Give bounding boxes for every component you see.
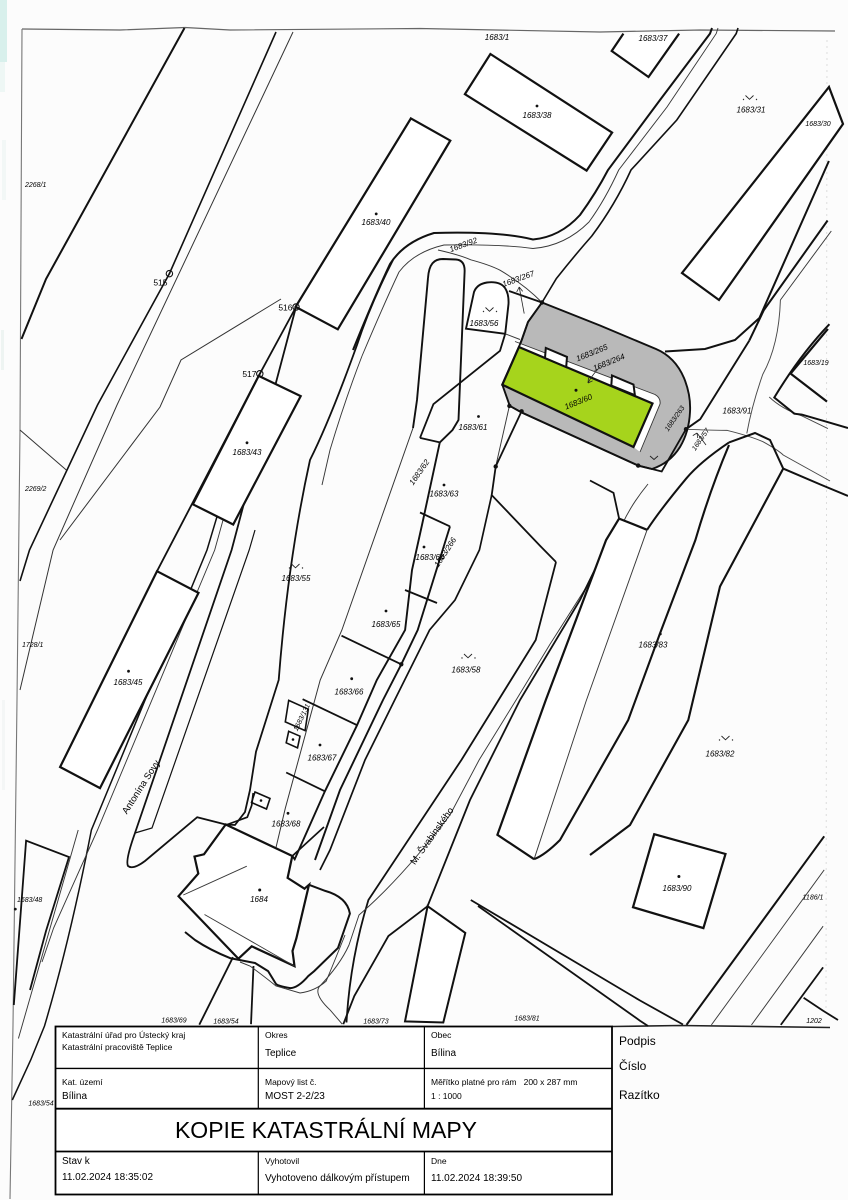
svg-text:1683/82: 1683/82 (706, 750, 735, 759)
svg-text:2269/2: 2269/2 (24, 486, 47, 493)
svg-text:1683/61: 1683/61 (459, 423, 488, 432)
svg-text:1683/90: 1683/90 (663, 884, 692, 893)
svg-text:1683/62: 1683/62 (407, 457, 431, 486)
svg-text:1683/56: 1683/56 (470, 319, 499, 328)
svg-text:1202: 1202 (806, 1018, 822, 1025)
svg-text:1683/40: 1683/40 (362, 218, 391, 227)
svg-text:1683/91: 1683/91 (723, 407, 752, 416)
svg-text:1683/43: 1683/43 (233, 448, 262, 457)
svg-text:Katastrální pracoviště Teplice: Katastrální pracoviště Teplice (62, 1042, 173, 1052)
svg-text:1683/55: 1683/55 (282, 574, 311, 583)
svg-text:1683/45: 1683/45 (114, 678, 143, 687)
svg-text:1186/1: 1186/1 (803, 895, 824, 902)
svg-text:1683/48: 1683/48 (17, 897, 42, 904)
svg-text:Teplice: Teplice (265, 1048, 297, 1059)
svg-text:1683/67: 1683/67 (308, 754, 337, 763)
svg-text:Kat. území: Kat. území (62, 1077, 103, 1087)
svg-text:M. Švabinského: M. Švabinského (408, 806, 456, 867)
svg-text:Vyhotovil: Vyhotovil (265, 1156, 299, 1166)
svg-text:Podpis: Podpis (619, 1034, 656, 1048)
svg-text:Okres: Okres (265, 1030, 288, 1040)
svg-text:11.02.2024 18:39:50: 11.02.2024 18:39:50 (431, 1173, 522, 1184)
svg-text:1683/30: 1683/30 (805, 121, 830, 128)
svg-text:1683/54: 1683/54 (213, 1019, 238, 1026)
svg-text:Měřítko platné pro rám 200 x: Měřítko platné pro rám 200 x 287 mm (431, 1077, 577, 1087)
svg-text:KOPIE KATASTRÁLNÍ MAPY: KOPIE KATASTRÁLNÍ MAPY (175, 1117, 477, 1143)
svg-text:1683/1: 1683/1 (485, 33, 509, 42)
svg-text:Vyhotoveno dálkovým přístupem: Vyhotoveno dálkovým přístupem (265, 1173, 410, 1184)
svg-text:1683/31: 1683/31 (737, 106, 766, 115)
svg-text:Razítko: Razítko (619, 1088, 660, 1102)
svg-text:1683/267: 1683/267 (501, 269, 536, 289)
svg-text:Mapový list č.: Mapový list č. (265, 1077, 317, 1087)
svg-text:Katastrální úřad pro Ústecký k: Katastrální úřad pro Ústecký kraj (62, 1030, 185, 1040)
svg-text:Bílina: Bílina (62, 1091, 87, 1102)
svg-text:1683/68: 1683/68 (272, 820, 301, 829)
svg-text:1728/1: 1728/1 (22, 642, 44, 649)
svg-text:MOST 2-2/23: MOST 2-2/23 (265, 1091, 325, 1102)
svg-text:1683/58: 1683/58 (452, 666, 481, 675)
svg-text:1683/63: 1683/63 (430, 490, 459, 499)
svg-text:Antonína Sovy: Antonína Sovy (120, 758, 163, 816)
svg-text:1683/54: 1683/54 (28, 1101, 53, 1108)
svg-text:Obec: Obec (431, 1030, 452, 1040)
svg-text:1683/66: 1683/66 (335, 688, 364, 697)
svg-text:1683/83: 1683/83 (639, 641, 668, 650)
svg-text:516: 516 (278, 303, 292, 313)
svg-text:1683/19: 1683/19 (803, 360, 828, 367)
svg-text:1683/65: 1683/65 (372, 620, 401, 629)
svg-text:1683/69: 1683/69 (161, 1018, 186, 1025)
svg-text:Bílina: Bílina (431, 1048, 456, 1059)
svg-text:11.02.2024 18:35:02: 11.02.2024 18:35:02 (62, 1172, 153, 1183)
svg-text:Stav k: Stav k (62, 1156, 91, 1167)
svg-text:1683/38: 1683/38 (523, 111, 552, 120)
svg-text:1683/73: 1683/73 (363, 1019, 388, 1026)
svg-text:2268/1: 2268/1 (24, 182, 47, 189)
svg-text:1683/37: 1683/37 (639, 34, 668, 43)
svg-text:1684: 1684 (250, 895, 268, 904)
svg-text:Číslo: Číslo (619, 1058, 647, 1073)
svg-text:Dne: Dne (431, 1156, 447, 1166)
svg-text:1683/92: 1683/92 (448, 236, 479, 255)
svg-text:1683/81: 1683/81 (514, 1016, 539, 1023)
svg-text:515: 515 (153, 278, 167, 288)
svg-text:517: 517 (242, 369, 256, 379)
svg-text:1683/64: 1683/64 (416, 553, 445, 562)
svg-text:1 : 1000: 1 : 1000 (431, 1091, 462, 1101)
